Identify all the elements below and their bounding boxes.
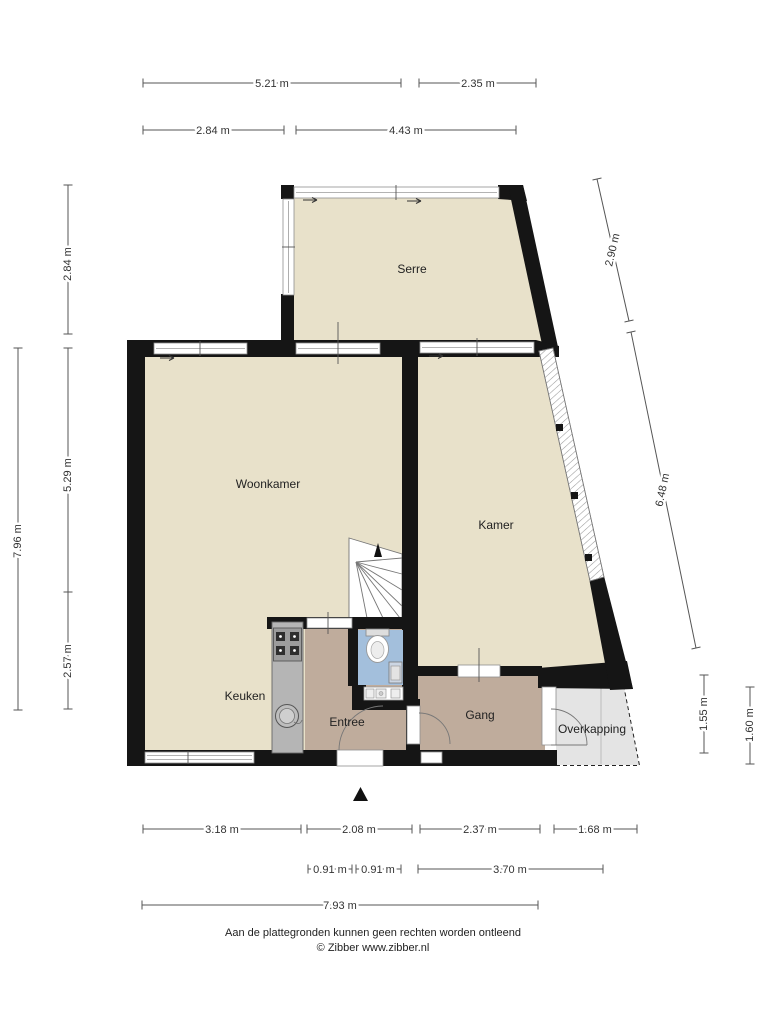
room-label-entree: Entree: [329, 715, 365, 729]
room-label-overkapping: Overkapping: [558, 722, 626, 736]
svg-text:2.35 m: 2.35 m: [461, 78, 495, 90]
washbasin-strip: [364, 687, 403, 700]
gang-bottom-window: [421, 752, 442, 763]
footer-disclaimer: Aan de plattegronden kunnen geen rechten…: [225, 927, 521, 939]
gang-overkapping-door: [542, 687, 556, 745]
dim-bottom-091b: 0.91 m: [356, 864, 401, 876]
svg-text:2.57 m: 2.57 m: [62, 644, 74, 678]
left-exterior-wall: [127, 340, 145, 766]
room-label-woonkamer: Woonkamer: [236, 477, 300, 491]
woonkamer-entree-opening: [307, 618, 352, 628]
svg-text:7.93 m: 7.93 m: [323, 900, 357, 912]
svg-text:5.21 m: 5.21 m: [255, 78, 289, 90]
room-label-keuken: Keuken: [225, 689, 266, 703]
toilet-tank: [366, 629, 389, 636]
svg-text:3.70 m: 3.70 m: [493, 864, 527, 876]
svg-text:2.08 m: 2.08 m: [342, 824, 376, 836]
svg-text:2.84 m: 2.84 m: [196, 125, 230, 137]
wc-left-wall: [348, 626, 358, 686]
svg-text:3.18 m: 3.18 m: [205, 824, 239, 836]
svg-text:2.37 m: 2.37 m: [463, 824, 497, 836]
entrance-door-opening: [337, 750, 383, 766]
room-label-kamer: Kamer: [478, 518, 513, 532]
footer-credit: © Zibber www.zibber.nl: [317, 942, 430, 954]
svg-text:7.96 m: 7.96 m: [12, 524, 24, 558]
woonkamer-kamer-wall: [402, 340, 418, 710]
entree-gang-door: [407, 706, 420, 744]
dim-bottom-091a: 0.91 m: [308, 864, 352, 876]
serre-corner-wall: [281, 185, 294, 199]
svg-text:2.84 m: 2.84 m: [62, 247, 74, 281]
room-label-gang: Gang: [465, 708, 494, 722]
svg-text:5.29 m: 5.29 m: [62, 458, 74, 492]
floor-plan: Serre Woonkamer Kamer Keuken Entree Gang…: [0, 0, 768, 1024]
svg-text:1.68 m: 1.68 m: [578, 824, 612, 836]
svg-text:0.91 m: 0.91 m: [361, 864, 395, 876]
svg-text:1.60 m: 1.60 m: [744, 708, 756, 742]
svg-text:0.91 m: 0.91 m: [313, 864, 347, 876]
svg-text:4.43 m: 4.43 m: [389, 125, 423, 137]
keuken-bottom-window: [145, 752, 254, 763]
svg-text:1.55 m: 1.55 m: [698, 697, 710, 731]
room-label-serre: Serre: [397, 262, 427, 276]
